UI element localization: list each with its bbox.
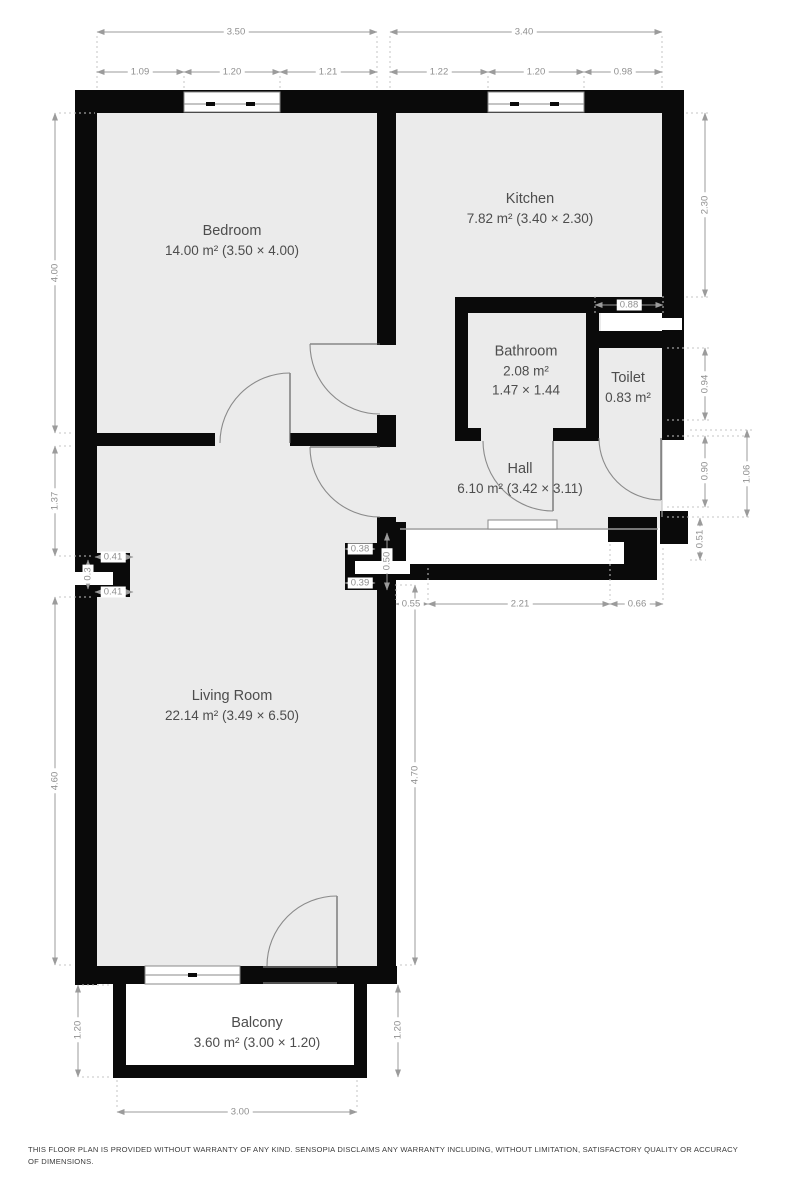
dim-right-niche-inner: 0.90	[700, 459, 711, 484]
dim-right-duct: 0.88	[617, 300, 642, 311]
dim-left-balcony: 1.20	[73, 1018, 84, 1043]
room-area: 2.08 m²	[492, 362, 560, 381]
dim-left-duct-mid: 0.3	[83, 564, 94, 583]
room-name: Hall	[457, 460, 582, 479]
dim-right-balcony: 1.20	[393, 1018, 404, 1043]
dim-right-living: 4.70	[410, 763, 421, 788]
dim-top-right-3: 0.98	[611, 67, 636, 78]
dim-left-duct-bottom: 0.41	[101, 587, 126, 598]
room-name: Bathroom	[492, 343, 560, 362]
room-label-balcony: Balcony 3.60 m² (3.00 × 1.20)	[194, 1014, 320, 1052]
room-area: 7.82 m² (3.40 × 2.30)	[467, 209, 593, 228]
room-name: Bedroom	[165, 222, 299, 241]
dim-top-left-2: 1.20	[220, 67, 245, 78]
dim-left-bedroom: 4.00	[50, 261, 61, 286]
dim-entry-width: 2.21	[508, 599, 533, 610]
dim-left-mid: 1.37	[50, 489, 61, 514]
dim-right-kitchen: 2.30	[700, 193, 711, 218]
room-name: Balcony	[194, 1014, 320, 1033]
dim-right-toilet: 0.94	[700, 372, 711, 397]
dim-entry-right: 0.66	[625, 599, 650, 610]
dim-right-entry: 0.51	[695, 527, 706, 552]
room-label-bathroom: Bathroom 2.08 m² 1.47 × 1.44	[492, 343, 560, 400]
dim-top-right-1: 1.22	[427, 67, 452, 78]
dim-center-duct-bottom: 0.39	[348, 578, 373, 589]
room-area: 3.60 m² (3.00 × 1.20)	[194, 1033, 320, 1052]
room-name: Kitchen	[467, 190, 593, 209]
room-label-toilet: Toilet 0.83 m²	[605, 369, 651, 407]
room-name: Living Room	[165, 687, 299, 706]
dim-center-duct-mid: 0.50	[382, 549, 393, 574]
dim-top-right-2: 1.20	[524, 67, 549, 78]
room-label-kitchen: Kitchen 7.82 m² (3.40 × 2.30)	[467, 190, 593, 228]
dim-top-left-3: 1.21	[316, 67, 341, 78]
room-name: Toilet	[605, 369, 651, 388]
room-label-hall: Hall 6.10 m² (3.42 × 3.11)	[457, 460, 582, 498]
dim-left-living: 4.60	[50, 769, 61, 794]
dim-center-duct-top: 0.38	[348, 544, 373, 555]
dim-balcony-width: 3.00	[228, 1107, 253, 1118]
dim-left-duct-top: 0.41	[101, 552, 126, 563]
room-size: 1.47 × 1.44	[492, 381, 560, 400]
floor-plan: Bedroom 14.00 m² (3.50 × 4.00) Kitchen 7…	[0, 0, 800, 1200]
room-label-living-room: Living Room 22.14 m² (3.49 × 6.50)	[165, 687, 299, 725]
room-area: 6.10 m² (3.42 × 3.11)	[457, 479, 582, 498]
dim-top-right-total: 3.40	[512, 27, 537, 38]
dim-entry-left: 0.55	[399, 599, 424, 610]
dim-right-niche-outer: 1.06	[742, 462, 753, 487]
room-area: 14.00 m² (3.50 × 4.00)	[165, 241, 299, 260]
room-area: 22.14 m² (3.49 × 6.50)	[165, 706, 299, 725]
dim-top-left-1: 1.09	[128, 67, 153, 78]
disclaimer-text: THIS FLOOR PLAN IS PROVIDED WITHOUT WARR…	[28, 1144, 748, 1168]
dim-top-left-total: 3.50	[224, 27, 249, 38]
room-label-bedroom: Bedroom 14.00 m² (3.50 × 4.00)	[165, 222, 299, 260]
room-area: 0.83 m²	[605, 388, 651, 407]
